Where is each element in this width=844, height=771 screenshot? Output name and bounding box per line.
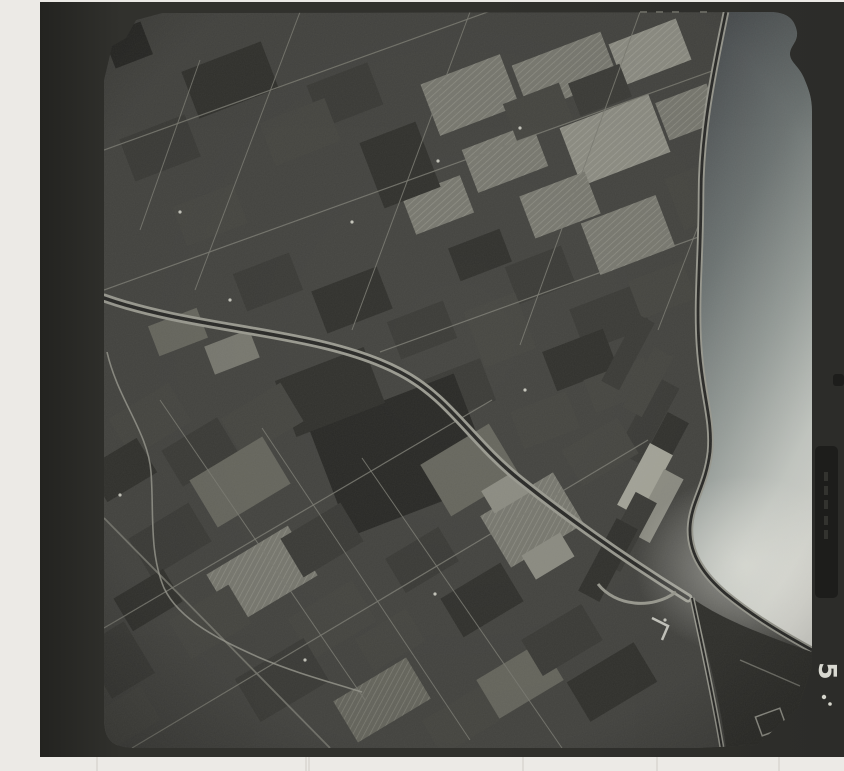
edge-nub bbox=[833, 374, 844, 386]
tab-data-dash bbox=[824, 516, 828, 525]
edge-tick bbox=[640, 11, 647, 13]
registration-dot bbox=[828, 702, 832, 706]
film-grain bbox=[100, 8, 816, 752]
edge-tick bbox=[656, 11, 663, 13]
edge-tick bbox=[700, 11, 707, 13]
tab-data-dash bbox=[824, 500, 828, 509]
tab-data-dash bbox=[824, 486, 828, 495]
photo-frame-number: 5 bbox=[811, 656, 843, 686]
scanned-aerial-photo-page: 5 bbox=[0, 0, 844, 771]
edge-tick bbox=[672, 11, 679, 13]
registration-dot bbox=[822, 695, 826, 699]
tab-data-dash bbox=[824, 530, 828, 539]
tab-data-dash bbox=[824, 472, 828, 481]
aerial-photo-canvas bbox=[0, 0, 844, 771]
photo-content bbox=[81, 0, 844, 755]
